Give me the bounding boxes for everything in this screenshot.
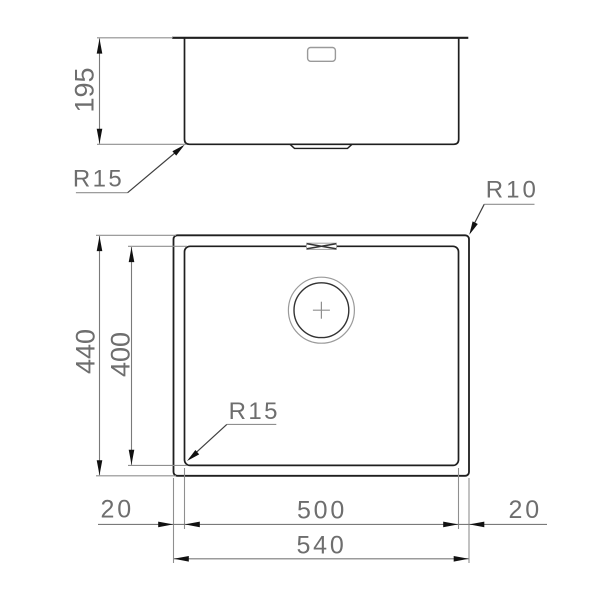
svg-text:500: 500 xyxy=(297,497,347,525)
svg-text:440: 440 xyxy=(71,329,101,374)
svg-text:540: 540 xyxy=(296,532,346,560)
svg-text:20: 20 xyxy=(508,496,541,524)
svg-text:R15: R15 xyxy=(73,166,124,193)
svg-text:400: 400 xyxy=(105,332,135,377)
svg-text:R15: R15 xyxy=(229,398,280,425)
svg-text:20: 20 xyxy=(100,496,133,524)
svg-text:R10: R10 xyxy=(486,176,539,203)
svg-text:195: 195 xyxy=(69,67,99,112)
